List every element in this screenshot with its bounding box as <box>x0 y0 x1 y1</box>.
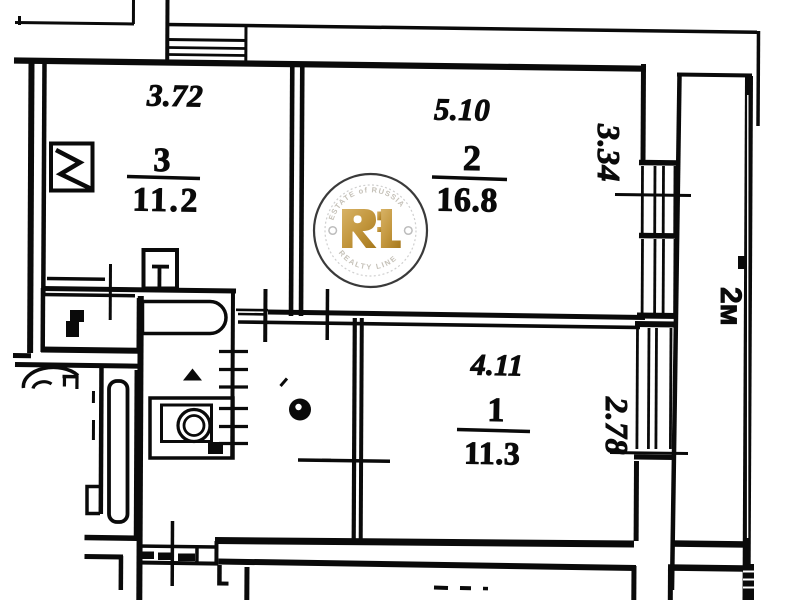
svg-text:11.2: 11.2 <box>132 181 200 219</box>
svg-text:2: 2 <box>463 138 482 178</box>
svg-text:5.10: 5.10 <box>434 92 491 128</box>
svg-text:2м: 2м <box>714 287 747 326</box>
svg-text:16.8: 16.8 <box>436 181 498 219</box>
svg-text:1: 1 <box>487 392 505 429</box>
svg-text:11.3: 11.3 <box>464 435 521 472</box>
svg-text:2.78: 2.78 <box>599 396 635 455</box>
svg-text:3.34: 3.34 <box>591 123 627 182</box>
svg-text:4.11: 4.11 <box>469 349 523 383</box>
svg-text:3.72: 3.72 <box>146 77 204 113</box>
svg-text:3: 3 <box>153 142 171 179</box>
